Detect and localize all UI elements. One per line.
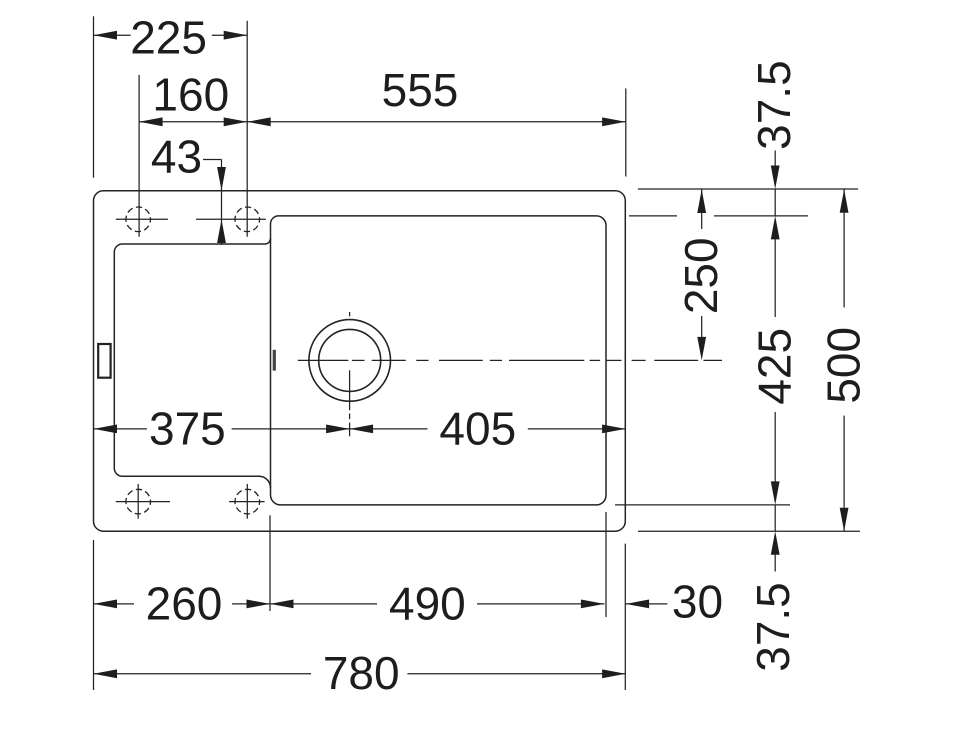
svg-text:260: 260 <box>146 578 223 630</box>
svg-text:225: 225 <box>130 11 207 63</box>
svg-text:780: 780 <box>323 647 400 699</box>
svg-text:43: 43 <box>151 131 202 183</box>
svg-text:405: 405 <box>439 403 516 455</box>
svg-text:490: 490 <box>389 578 466 630</box>
svg-text:37.5: 37.5 <box>748 60 800 150</box>
svg-text:160: 160 <box>152 69 229 121</box>
svg-text:555: 555 <box>382 64 459 116</box>
svg-text:375: 375 <box>149 403 226 455</box>
svg-text:30: 30 <box>672 575 723 627</box>
svg-text:425: 425 <box>749 328 801 405</box>
svg-text:37.5: 37.5 <box>747 582 799 672</box>
svg-text:250: 250 <box>675 237 727 314</box>
svg-text:500: 500 <box>818 327 870 404</box>
